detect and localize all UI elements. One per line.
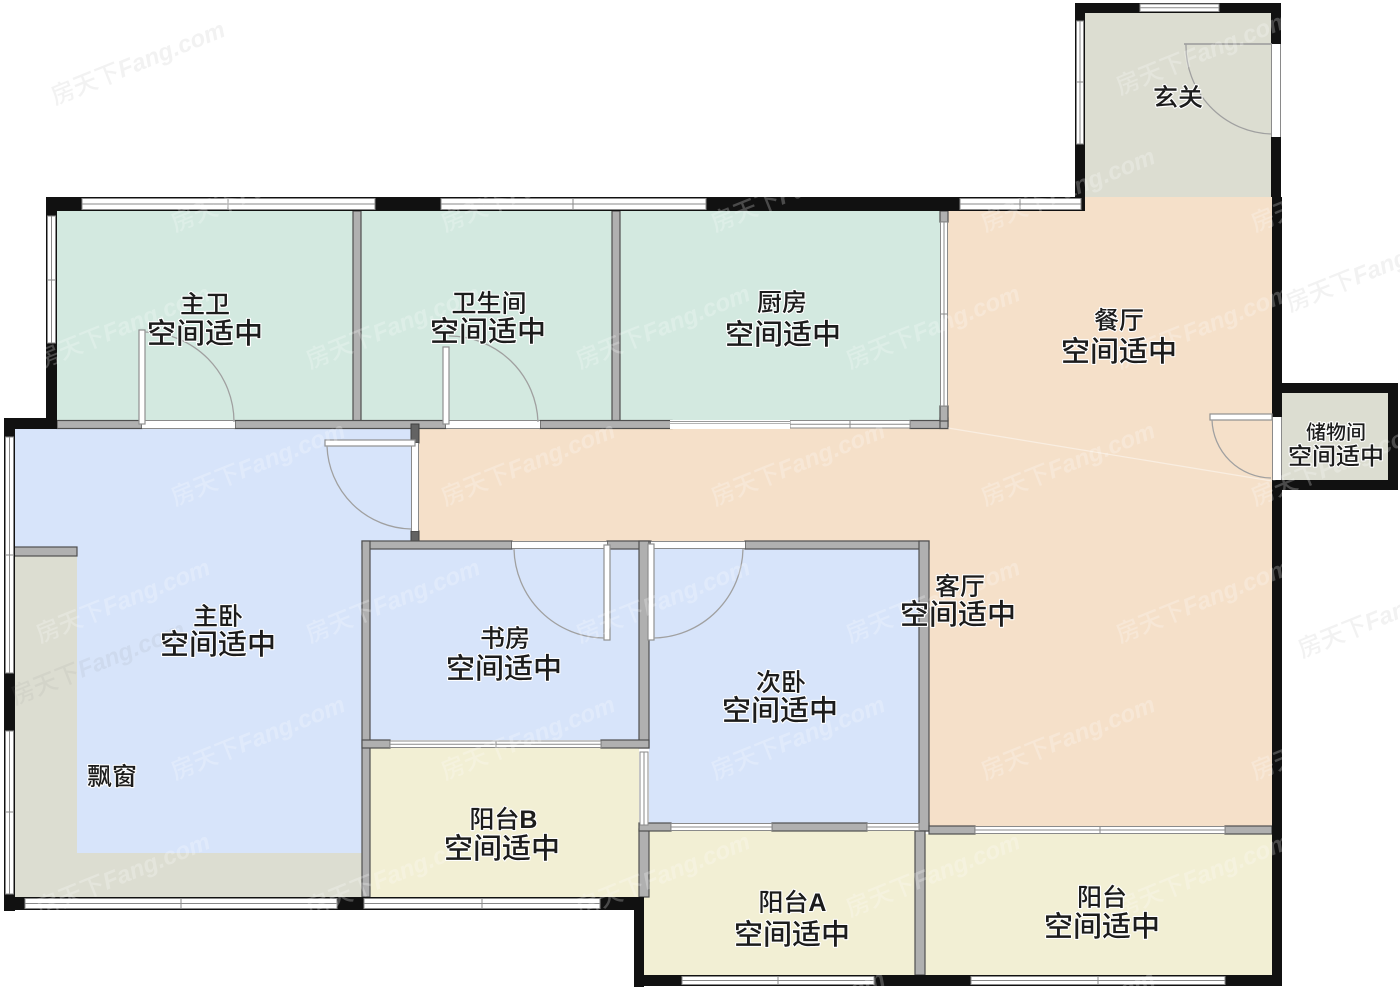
svg-text:A: A [808,889,826,917]
svg-text:B: B [519,806,537,834]
